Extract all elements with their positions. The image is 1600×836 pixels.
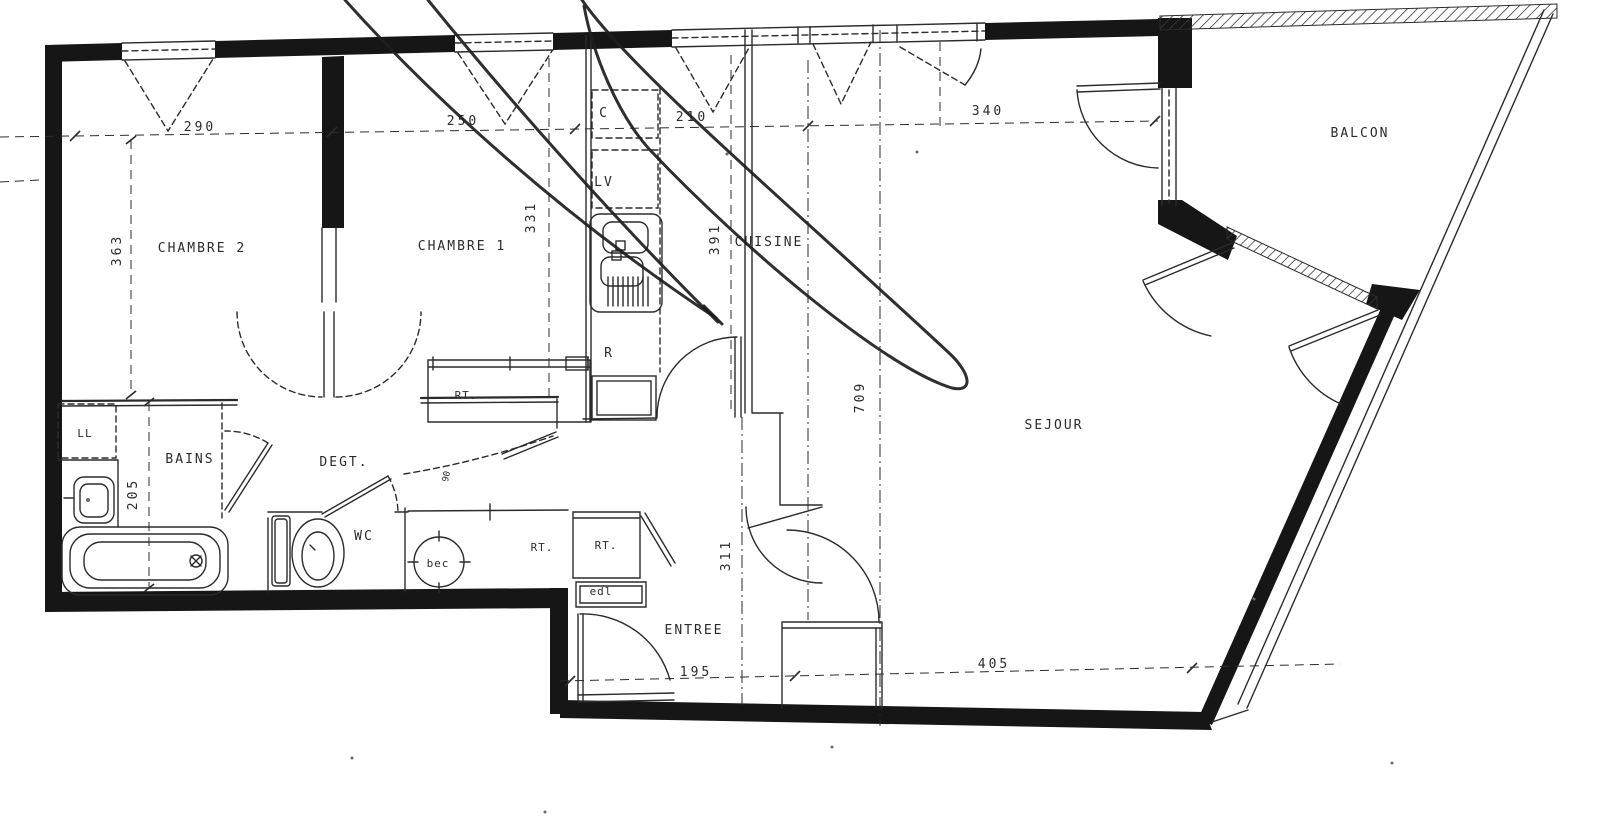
closet-label-edl: edl — [590, 585, 613, 598]
dim-label-391: 391 — [708, 223, 723, 255]
equip-label-refrigerateur: R — [604, 346, 614, 361]
dim-label-311: 311 — [719, 539, 734, 571]
entree-sejour-closet — [782, 622, 882, 708]
room-label-entree: ENTREE — [665, 623, 724, 638]
closet-label-rt-chambre1: RT. — [455, 389, 478, 402]
door-width-label: 90 — [441, 470, 453, 483]
passage-door-leaf — [748, 507, 822, 528]
closet-label-rt-entree: RT. — [595, 539, 618, 552]
left-wall — [45, 45, 62, 600]
southeast-diagonal-wall — [1198, 297, 1400, 725]
dim-label-340: 340 — [972, 104, 1004, 119]
top-wall-seg-c — [553, 30, 672, 50]
pen-scribble-artifacts — [345, 0, 967, 389]
balcony-parapet — [1160, 4, 1557, 30]
top-wall-seg-b — [215, 35, 455, 58]
fridge-cabinet — [592, 376, 656, 420]
top-wall-seg-d — [985, 19, 1158, 40]
structural-walls — [45, 18, 1420, 730]
room-label-wc: WC — [354, 529, 374, 544]
entree-door-arc — [580, 614, 670, 680]
french-door2-arc — [1289, 347, 1341, 404]
cuisine-bottom-wall — [583, 418, 657, 419]
casement-arc — [965, 49, 981, 85]
bedroom-partition-thick — [322, 56, 344, 228]
chambre2-door-arc — [237, 312, 322, 397]
wc-door-arc — [388, 476, 398, 514]
bathtub-drain — [190, 555, 202, 567]
floor-plan-drawing: CHAMBRE 2 CHAMBRE 1 CUISINE SEJOUR BALCO… — [0, 0, 1600, 836]
room-label-balcon: BALCON — [1331, 126, 1390, 141]
equip-label-lave-vaisselle: LV — [594, 175, 614, 190]
dim-label-205: 205 — [126, 478, 141, 510]
left-margin-dash — [0, 180, 40, 182]
dim-label-195: 195 — [680, 665, 712, 680]
scribble-loop — [582, 0, 967, 389]
window-band-cuisine-sejour — [672, 23, 985, 47]
cuisine-door-arc — [657, 337, 737, 417]
dim-label-405: 405 — [978, 657, 1010, 672]
dim-label-290: 290 — [184, 120, 216, 135]
cuisine-door-leaf — [735, 337, 741, 417]
bottom-left-wall — [45, 588, 565, 612]
hall-top-wall — [62, 397, 558, 401]
room-label-bains: BAINS — [165, 452, 214, 467]
closet-door-leaf — [641, 513, 675, 566]
bains-door-leaf — [225, 443, 272, 512]
balcony-french-door-sill — [1227, 227, 1377, 309]
dim-label-363: 363 — [110, 234, 125, 266]
dim-label-709: 709 — [853, 381, 868, 413]
entree-left-wall — [550, 588, 568, 714]
sejour-door-arc — [787, 530, 879, 622]
bedroom-partition-thin — [322, 228, 336, 302]
room-label-chambre1: CHAMBRE 1 — [418, 239, 506, 254]
dim-label-331: 331 — [524, 201, 539, 233]
equip-label-ballon-eau-chaude: bec — [427, 557, 450, 570]
room-label-sejour: SEJOUR — [1025, 418, 1084, 433]
equip-label-cuisson: C — [599, 106, 609, 121]
french-door1-arc — [1143, 281, 1211, 336]
bains-door-arc — [225, 431, 268, 443]
scribble-tip — [704, 306, 722, 324]
wc-door-leaf — [322, 476, 391, 517]
scanned-floor-plan-page: CHAMBRE 2 CHAMBRE 1 CUISINE SEJOUR BALCO… — [0, 0, 1600, 836]
toilet-bowl — [292, 519, 344, 587]
duct-box — [566, 357, 588, 370]
chambre1-door-arc — [336, 312, 421, 397]
degt-door-leaf — [502, 432, 558, 459]
closet-label-rt-couloir: RT. — [531, 541, 554, 554]
bathtub — [62, 527, 228, 595]
dim-label-250: 250 — [447, 114, 479, 129]
cuisine-sejour-wall — [745, 30, 822, 505]
room-label-chambre2: CHAMBRE 2 — [158, 241, 246, 256]
top-dim-line — [0, 121, 1158, 137]
room-label-degagement: DEGT. — [319, 455, 368, 470]
bottom-wall — [560, 700, 1212, 730]
balcony-door-arc — [1077, 90, 1158, 168]
equip-label-lave-linge: LL — [77, 427, 92, 440]
entree-door-leaf — [578, 614, 583, 700]
chambre-door-leaves — [324, 312, 334, 397]
balcony-railing — [1238, 10, 1553, 708]
balcony-door-leaf — [1077, 83, 1160, 92]
